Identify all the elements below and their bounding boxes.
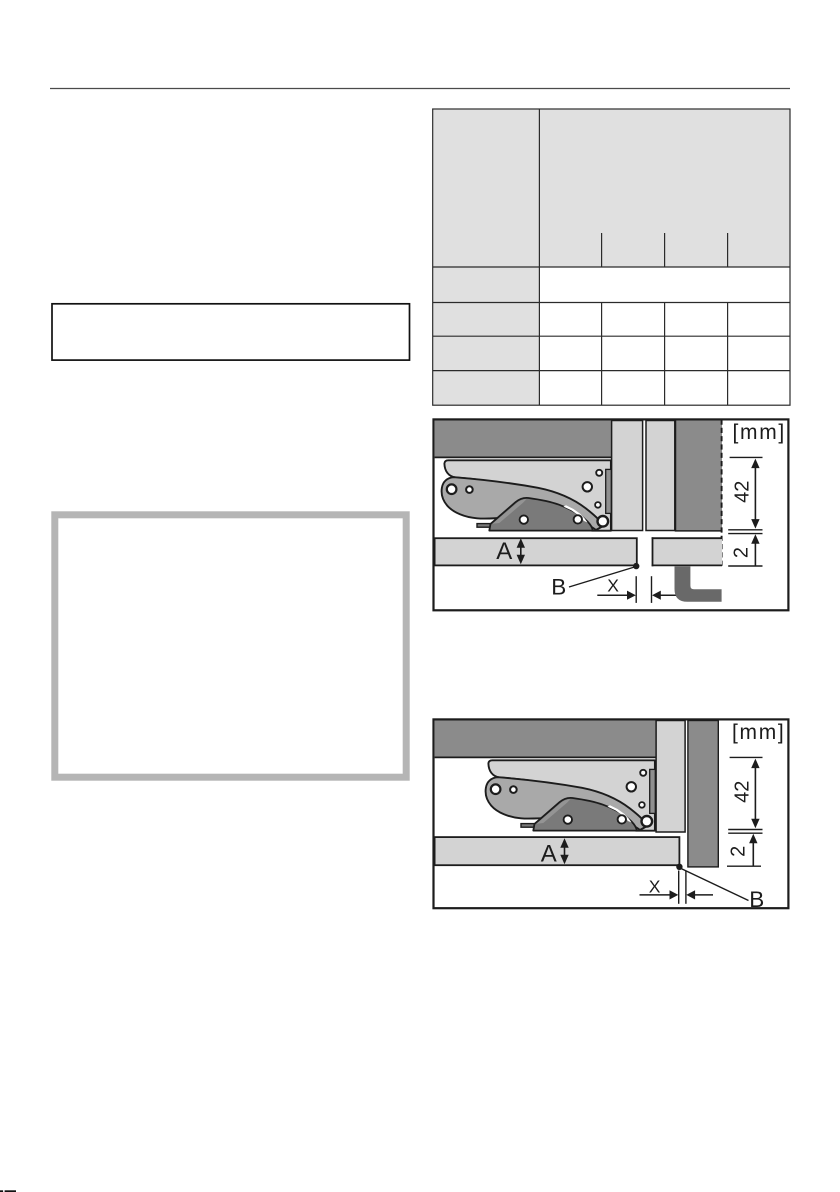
svg-text:42: 42 — [731, 481, 753, 503]
svg-text:X: X — [649, 876, 661, 896]
svg-text:A: A — [496, 538, 512, 565]
svg-text:42: 42 — [731, 781, 753, 803]
svg-text:[mm]: [mm] — [732, 721, 785, 744]
svg-text:B: B — [551, 575, 566, 600]
svg-text:B: B — [749, 887, 764, 912]
svg-text:2: 2 — [728, 846, 750, 857]
svg-text:[mm]: [mm] — [733, 421, 786, 444]
svg-text:X: X — [607, 576, 619, 596]
svg-text:A: A — [541, 840, 557, 867]
svg-text:2: 2 — [730, 547, 752, 558]
